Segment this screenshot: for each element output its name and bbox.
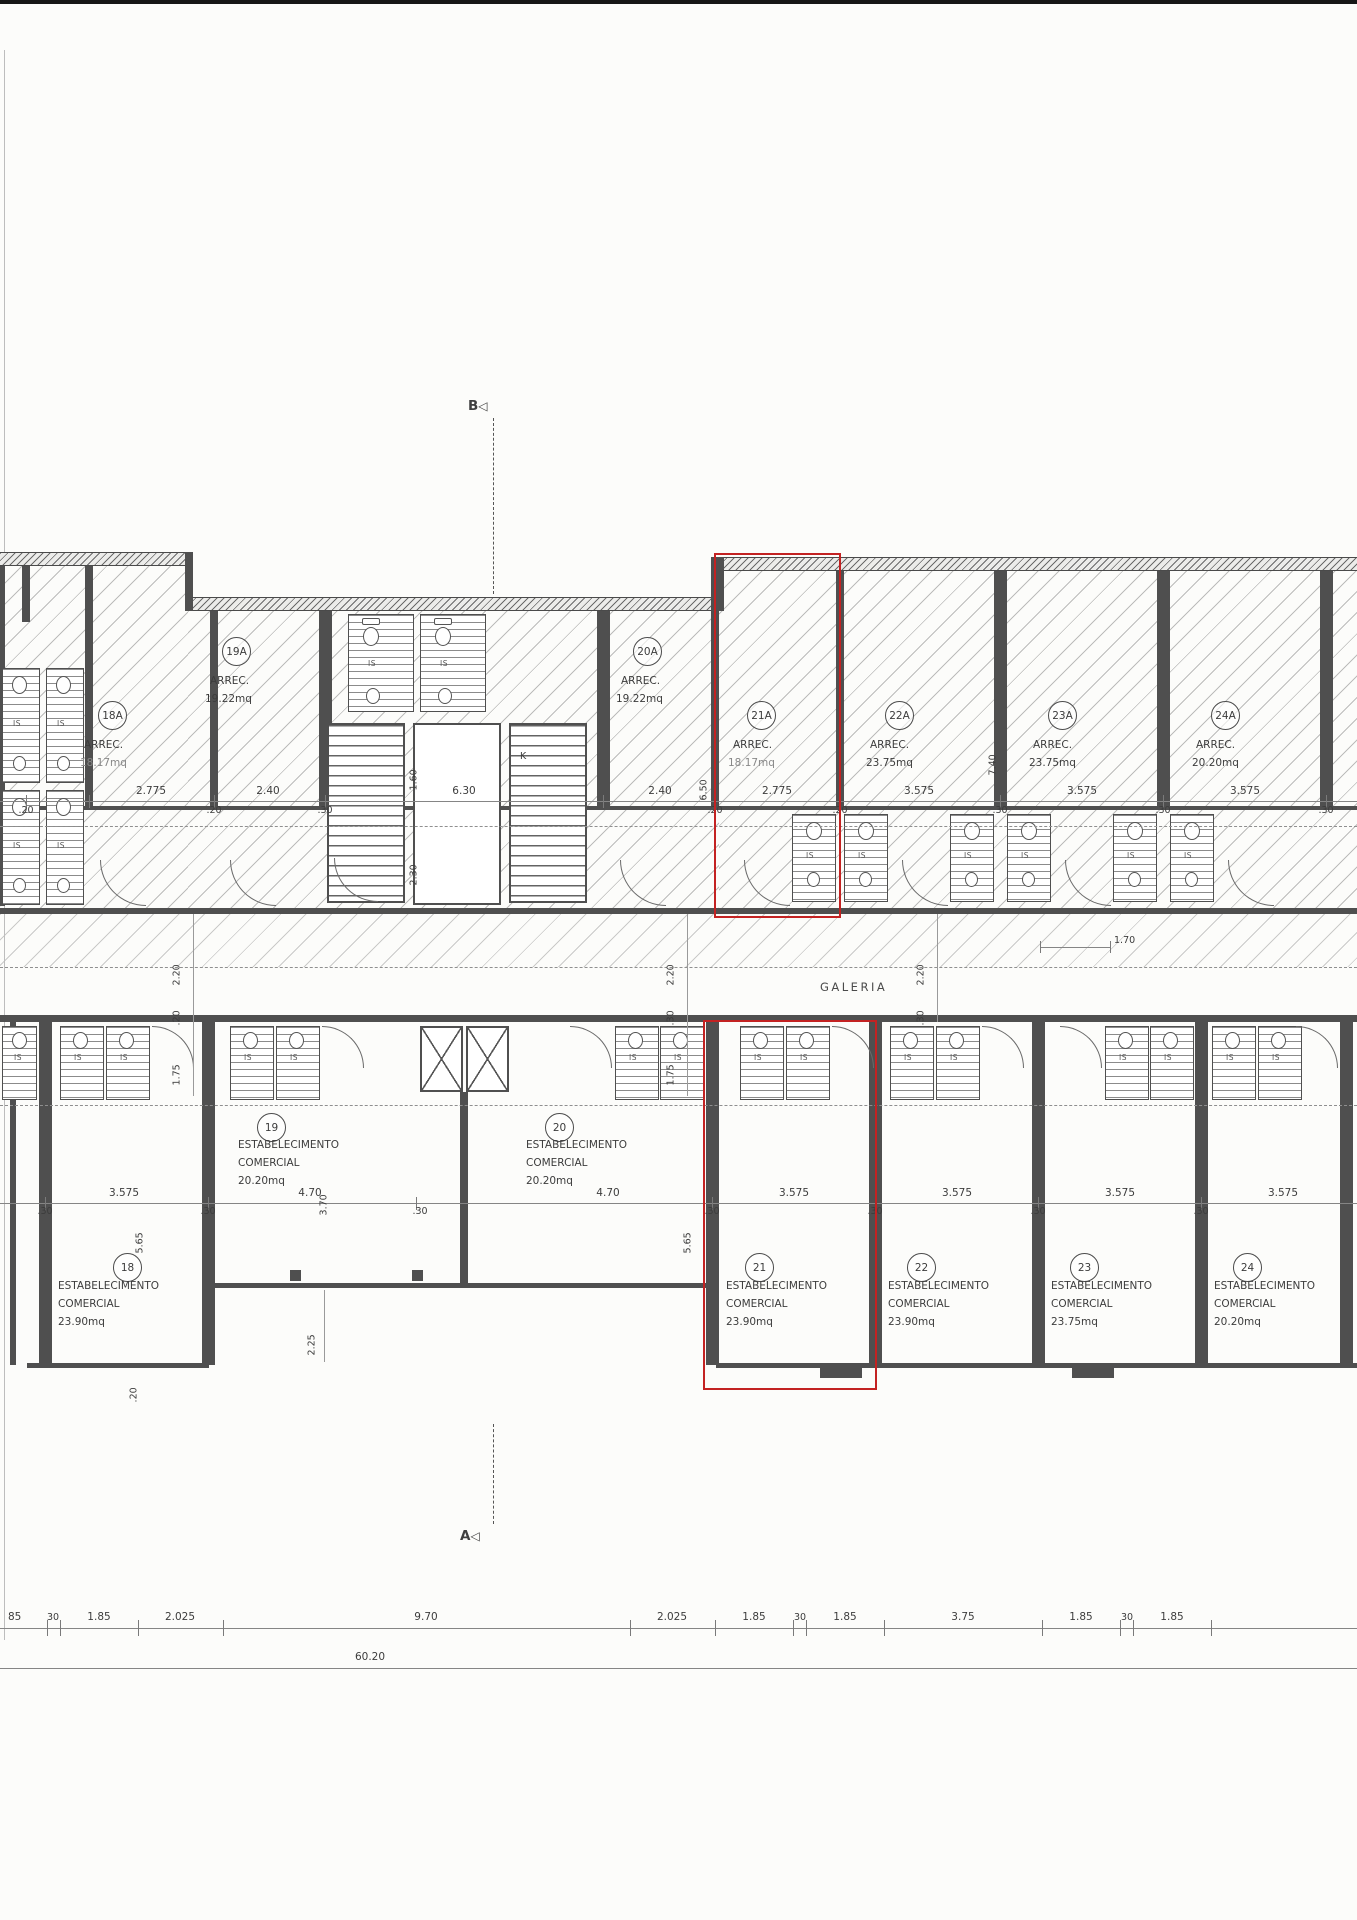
dim-bottom: 1.85 (1069, 1612, 1092, 1624)
unit-number: 18A (102, 710, 123, 722)
unit-area-22a: 23.75mq (866, 758, 913, 770)
dim-mid-wall: .30 (200, 1207, 215, 1217)
is-label: IS (1127, 852, 1135, 860)
toilet-icon (119, 1032, 134, 1049)
toilet-icon (243, 1032, 258, 1049)
toilet-icon (73, 1032, 88, 1049)
wall-units-bottom (0, 806, 1357, 810)
unit-circle-23a: 23A (1048, 701, 1077, 730)
is-label: IS (368, 660, 376, 668)
stair-k-label: K (520, 752, 526, 762)
unit-type2-20: COMERCIAL (526, 1158, 588, 1170)
dim-tick (884, 1620, 885, 1636)
dim-bottom: 30 (1121, 1613, 1133, 1623)
dim-top-wall: .30 (992, 806, 1007, 816)
is-label: IS (1184, 852, 1192, 860)
unit-circle-23: 23 (1070, 1253, 1099, 1282)
exterior-wall-top-recess (188, 597, 719, 611)
unit-number: 24 (1241, 1262, 1254, 1274)
unit-circle-20: 20 (545, 1113, 574, 1142)
wall-core-right (597, 611, 610, 806)
floor-plan: B◁ IS IS IS IS IS IS (0, 0, 1357, 1920)
toilet-icon (12, 676, 27, 694)
unit-number: 19 (265, 1122, 278, 1134)
dim-top: 3.575 (1230, 786, 1260, 798)
dim-top-wall: .30 (1318, 806, 1333, 816)
toilet-icon (435, 627, 451, 646)
dim-vertical: .20 (130, 1387, 140, 1402)
door-arc (1296, 1026, 1338, 1068)
unit-type2-23: COMERCIAL (1051, 1299, 1113, 1311)
unit-number: 18 (121, 1262, 134, 1274)
wall-17a (22, 566, 30, 622)
unit-type-18a: ARREC. (84, 740, 123, 752)
unit-circle-22a: 22A (885, 701, 914, 730)
sink-icon (1128, 872, 1141, 887)
storefront-side-left (203, 1283, 209, 1365)
wall-24a-right (1320, 571, 1333, 806)
section-a-label: A (460, 1528, 470, 1544)
sink-icon (859, 872, 872, 887)
dim-tick (1211, 1620, 1212, 1636)
dim-mid: 3.575 (1268, 1188, 1298, 1200)
is-label: IS (57, 720, 65, 728)
unit-area-24a: 20.20mq (1192, 758, 1239, 770)
unit-circle-24a: 24A (1211, 701, 1240, 730)
unit-type-24a: ARREC. (1196, 740, 1235, 752)
unit-area-23a: 23.75mq (1029, 758, 1076, 770)
unit-type-22: ESTABELECIMENTO (888, 1281, 989, 1293)
stair-landing (413, 723, 501, 905)
unit-circle-22: 22 (907, 1253, 936, 1282)
sink-icon (57, 878, 70, 893)
unit-area-19a: 19.22mq (205, 694, 252, 706)
dim-small-right: 1.70 (1114, 936, 1135, 946)
toilet-icon (1021, 822, 1037, 840)
dim-mid-wall: .30 (37, 1207, 52, 1217)
storefront-column (290, 1270, 301, 1281)
shop-dash-line (0, 1105, 1357, 1106)
dim-top: 2.40 (256, 786, 279, 798)
unit-type2-19: COMERCIAL (238, 1158, 300, 1170)
is-label: IS (13, 842, 21, 850)
section-b-label: B (468, 398, 478, 414)
sink-icon (438, 688, 452, 704)
dim-stair: 2.30 (410, 864, 420, 885)
unit-number: 23 (1078, 1262, 1091, 1274)
highlight-box-unit-21 (703, 1020, 877, 1390)
sink-icon (1022, 872, 1035, 887)
storefront-column (412, 1270, 423, 1281)
unit-area-22: 23.90mq (888, 1317, 935, 1329)
dim-vertical: 7.40 (989, 754, 999, 775)
dim-vertical: 6.50 (700, 779, 710, 800)
dim-vertical: 2.20 (173, 964, 183, 985)
dim-bottom: 85 (8, 1612, 21, 1624)
dim-vertical: 1.75 (173, 1064, 183, 1085)
wc-room (348, 614, 414, 712)
galeria-hatch (0, 914, 1357, 967)
dim-vertical: .30 (917, 1010, 927, 1025)
toilet-icon (363, 627, 379, 646)
is-label: IS (290, 1054, 298, 1062)
storefront-18 (27, 1363, 209, 1368)
unit-circle-18a: 18A (98, 701, 127, 730)
dim-vertical: .30 (667, 1010, 677, 1025)
unit-type2-24: COMERCIAL (1214, 1299, 1276, 1311)
section-a-triangle-icon: ◁ (470, 1529, 479, 1543)
is-label: IS (1272, 1054, 1280, 1062)
section-marker-a: A◁ (460, 1528, 480, 1544)
dim-line-total (0, 1668, 1357, 1669)
dim-top: 6.30 (452, 786, 475, 798)
dim-bottom: 1.85 (833, 1612, 856, 1624)
elevator-shaft-icon (420, 1026, 463, 1092)
section-line-a (493, 1424, 494, 1524)
wc-room (420, 614, 486, 712)
dim-bottom: 9.70 (414, 1612, 437, 1624)
unit-circle-20a: 20A (633, 637, 662, 666)
unit-area-20: 20.20mq (526, 1176, 573, 1188)
toilet-icon (1163, 1032, 1178, 1049)
dim-top: 2.40 (648, 786, 671, 798)
is-label: IS (1226, 1054, 1234, 1062)
dim-bottom: 1.85 (1160, 1612, 1183, 1624)
is-label: IS (440, 660, 448, 668)
dim-mid: 3.575 (1105, 1188, 1135, 1200)
is-label: IS (13, 720, 21, 728)
wall-18a-right (210, 611, 218, 806)
dim-mid: 3.575 (942, 1188, 972, 1200)
unit-area-18a: 18.17mq (80, 758, 127, 770)
unit-circle-24: 24 (1233, 1253, 1262, 1282)
section-line-b (493, 418, 494, 594)
unit-area-24: 20.20mq (1214, 1317, 1261, 1329)
sink-icon (366, 688, 380, 704)
unit-circle-19: 19 (257, 1113, 286, 1142)
galeria-label: GALERIA (820, 980, 887, 994)
wall-18a-left (85, 566, 93, 806)
is-label: IS (1119, 1054, 1127, 1062)
unit-area-19: 20.20mq (238, 1176, 285, 1188)
dim-vertical: 2.20 (917, 964, 927, 985)
unit-number: 20 (553, 1122, 566, 1134)
dim-vertical: .20 (173, 1010, 183, 1025)
door-arc (152, 1026, 194, 1068)
dim-tick (1110, 941, 1111, 953)
toilet-icon (673, 1032, 688, 1049)
bottom-block-north-wall (0, 1015, 1357, 1022)
dim-chain-line (324, 1290, 325, 1362)
door-arc (982, 1026, 1024, 1068)
wall-22-23 (1032, 1022, 1045, 1365)
storefront-19-20 (209, 1283, 716, 1288)
is-label: IS (1164, 1054, 1172, 1062)
sink-icon (13, 878, 26, 893)
dim-top: 3.575 (1067, 786, 1097, 798)
galeria-dash-line (0, 967, 1357, 968)
dim-bottom: 30 (47, 1613, 59, 1623)
unit-type-24: ESTABELECIMENTO (1214, 1281, 1315, 1293)
dim-chain-line (937, 914, 938, 1022)
sink-icon (1185, 872, 1198, 887)
toilet-icon (1118, 1032, 1133, 1049)
dim-line-small-right (1040, 947, 1110, 948)
toilet-icon (1225, 1032, 1240, 1049)
toilet-icon (858, 822, 874, 840)
unit-type2-22: COMERCIAL (888, 1299, 950, 1311)
unit-type-20a: ARREC. (621, 676, 660, 688)
dim-tick (60, 1620, 61, 1636)
toilet-icon (56, 676, 71, 694)
is-label: IS (244, 1054, 252, 1062)
is-label: IS (74, 1054, 82, 1062)
is-label: IS (674, 1054, 682, 1062)
unit-area-23: 23.75mq (1051, 1317, 1098, 1329)
dim-bottom: 2.025 (657, 1612, 687, 1624)
section-marker-b: B◁ (468, 398, 488, 414)
unit-type-19: ESTABELECIMENTO (238, 1140, 339, 1152)
unit-type2-18: COMERCIAL (58, 1299, 120, 1311)
dim-tick (715, 1620, 716, 1636)
storefront-stub (1072, 1368, 1114, 1378)
dim-tick (223, 1620, 224, 1636)
unit-number: 22 (915, 1262, 928, 1274)
dim-top: 3.575 (904, 786, 934, 798)
toilet-tank-icon (434, 618, 452, 625)
dim-chain-line (687, 914, 688, 1096)
unit-number: 19A (226, 646, 247, 658)
dim-bottom: 30 (794, 1613, 806, 1623)
unit-type-19a: ARREC. (210, 676, 249, 688)
exterior-wall-top-left (0, 552, 188, 566)
dim-top-wall: .20 (206, 806, 221, 816)
unit-area-18: 23.90mq (58, 1317, 105, 1329)
toilet-icon (628, 1032, 643, 1049)
dim-chain-line (193, 914, 194, 1096)
wall-19-20-below-core (460, 1092, 468, 1285)
unit-type-20: ESTABELECIMENTO (526, 1140, 627, 1152)
unit-area-20a: 19.22mq (616, 694, 663, 706)
toilet-icon (903, 1032, 918, 1049)
dim-tick (1042, 1620, 1043, 1636)
dim-bottom: 1.85 (87, 1612, 110, 1624)
unit-type-18: ESTABELECIMENTO (58, 1281, 159, 1293)
dim-tick (1040, 941, 1041, 953)
toilet-icon (949, 1032, 964, 1049)
section-b-triangle-icon: ◁ (478, 399, 487, 413)
dim-tick (89, 795, 90, 808)
sink-icon (13, 756, 26, 771)
stair-flight (509, 723, 587, 903)
dim-mid-wall: .30 (1193, 1207, 1208, 1217)
dim-vertical: 5.65 (684, 1232, 694, 1253)
dim-bottom: 3.75 (951, 1612, 974, 1624)
dim-vertical: 2.25 (308, 1334, 318, 1355)
top-block-south-wall (0, 908, 1357, 914)
dim-tick (806, 1620, 807, 1636)
sink-icon (965, 872, 978, 887)
dim-vertical: 2.20 (667, 964, 677, 985)
is-label: IS (629, 1054, 637, 1062)
toilet-icon (1271, 1032, 1286, 1049)
dim-top: 2.775 (136, 786, 166, 798)
wall-23-24 (1195, 1022, 1208, 1365)
dim-tick (603, 795, 604, 808)
is-label: IS (1021, 852, 1029, 860)
is-label: IS (57, 842, 65, 850)
is-label: IS (964, 852, 972, 860)
dim-bottom: 2.025 (165, 1612, 195, 1624)
door-arc (570, 1026, 612, 1068)
wall-24-right (1340, 1022, 1353, 1365)
unit-circle-18: 18 (113, 1253, 142, 1282)
toilet-icon (1127, 822, 1143, 840)
dim-vertical: 3.70 (320, 1194, 330, 1215)
step-wall-left (185, 552, 193, 611)
dim-vertical: 1.75 (667, 1064, 677, 1085)
wall-23a-24a (1157, 571, 1170, 806)
dim-line-bottom (0, 1628, 1357, 1629)
dim-line-top (0, 801, 1357, 802)
dim-mid-wall: .30 (1030, 1207, 1045, 1217)
dim-vertical: 5.65 (136, 1232, 146, 1253)
door-arc (1060, 1026, 1102, 1068)
dim-tick (138, 1620, 139, 1636)
dim-mid-wall: .30 (412, 1207, 427, 1217)
is-label: IS (950, 1054, 958, 1062)
wall-18-left (39, 1022, 52, 1365)
is-label: IS (120, 1054, 128, 1062)
dim-tick (630, 1620, 631, 1636)
sink-icon (57, 756, 70, 771)
unit-number: 22A (889, 710, 910, 722)
unit-type-22a: ARREC. (870, 740, 909, 752)
scan-top-edge (0, 0, 1357, 4)
door-arc (322, 1026, 364, 1068)
highlight-box-unit-21a (714, 553, 841, 918)
dim-top-wall: .30 (1155, 806, 1170, 816)
toilet-tank-icon (362, 618, 380, 625)
toilet-icon (964, 822, 980, 840)
unit-number: 23A (1052, 710, 1073, 722)
dim-top-wall: .30 (317, 806, 332, 816)
unit-type-23: ESTABELECIMENTO (1051, 1281, 1152, 1293)
dim-bottom: 1.85 (742, 1612, 765, 1624)
toilet-icon (289, 1032, 304, 1049)
dim-line-mid (0, 1203, 1357, 1204)
is-label: IS (904, 1054, 912, 1062)
dim-stair: 1.60 (410, 769, 420, 790)
unit-circle-19a: 19A (222, 637, 251, 666)
unit-number: 24A (1215, 710, 1236, 722)
unit-type-23a: ARREC. (1033, 740, 1072, 752)
elevator-shaft-icon (466, 1026, 509, 1092)
is-label: IS (14, 1054, 22, 1062)
dim-tick (1133, 1620, 1134, 1636)
toilet-icon (12, 1032, 27, 1049)
dim-total: 60.20 (355, 1652, 385, 1664)
toilet-icon (1184, 822, 1200, 840)
is-label: IS (858, 852, 866, 860)
dim-mid: 3.575 (109, 1188, 139, 1200)
dim-top-wall: .20 (18, 806, 33, 816)
unit-number: 20A (637, 646, 658, 658)
dim-mid: 4.70 (596, 1188, 619, 1200)
corridor-dash-line (0, 826, 1357, 827)
